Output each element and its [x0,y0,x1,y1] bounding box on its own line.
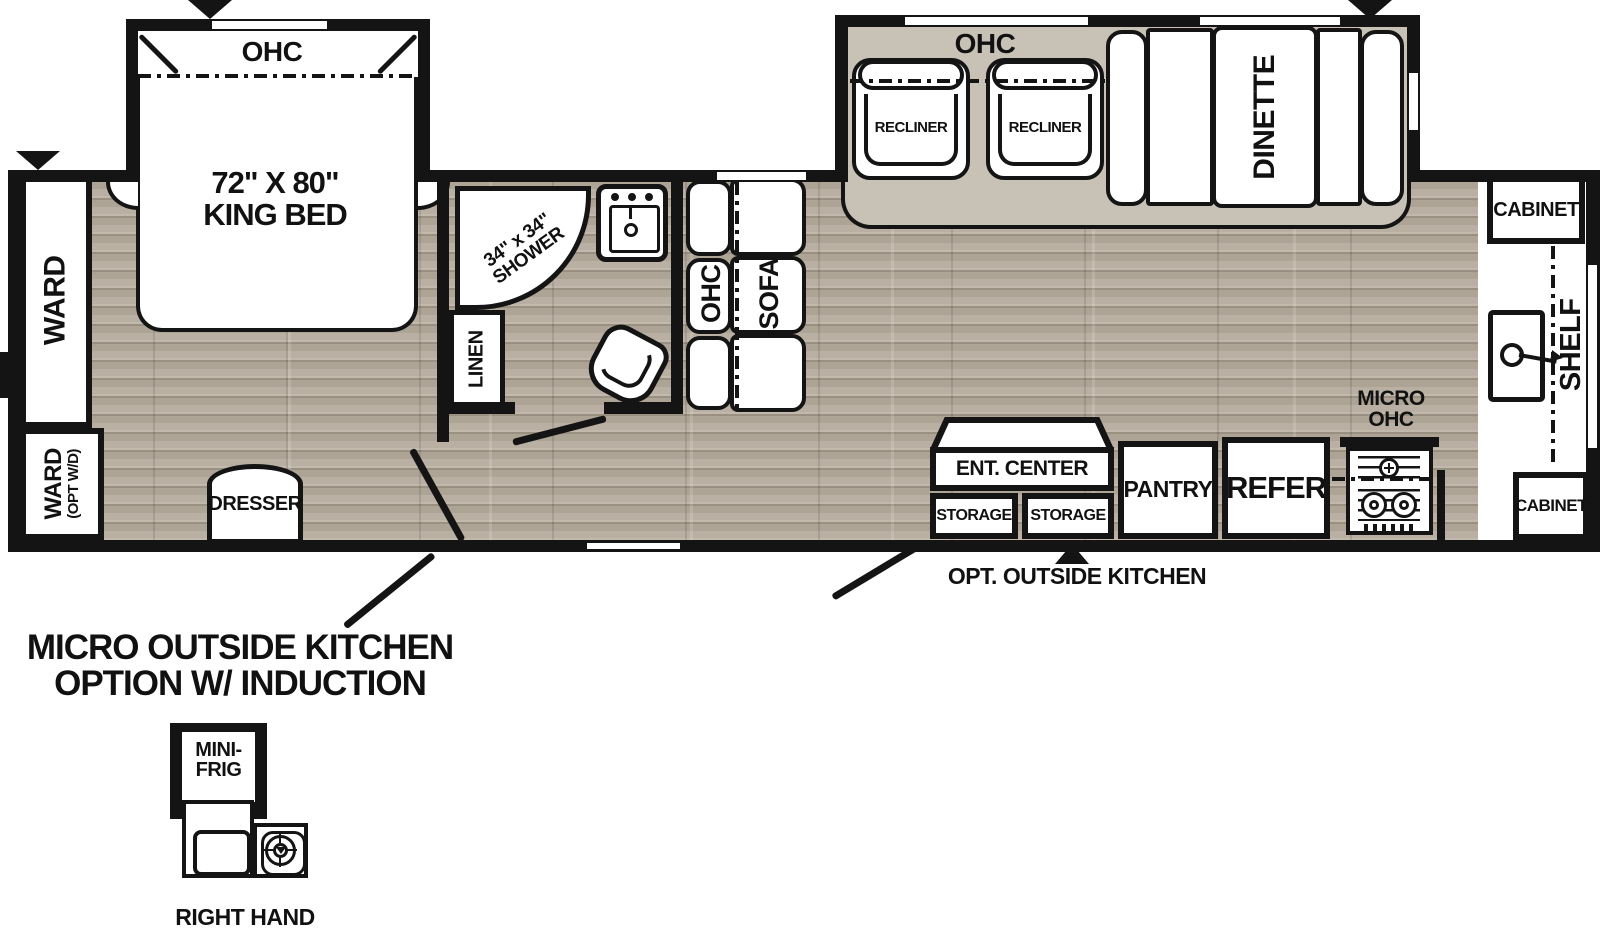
faucet-hole-icon [611,193,619,201]
storage-right: STORAGE [1022,493,1114,539]
dresser: DRESSER [207,464,303,544]
outside-kitchen-icons: MINI- FRIG [170,723,310,883]
burner-icon [1361,492,1387,518]
front-marker-icon [16,151,60,170]
ward-closet: WARD [20,172,92,428]
sofa-seat-cushion [730,334,806,412]
bed-slide-window [212,21,327,29]
dresser-label: DRESSER [208,494,301,514]
ent-center-top [930,417,1114,449]
shelf-label: SHELF [1557,285,1587,405]
sofa-ohc-line [735,182,739,410]
rear-cabinet-bottom: CABINET [1513,472,1589,540]
dinette-seat [1146,28,1214,206]
variant-label: RIGHT HAND [165,906,325,929]
living-slide-window [905,17,1088,25]
dinette-backrest [1106,30,1148,206]
top-wall [1407,170,1600,182]
recliner-label: RECLINER [852,120,970,135]
recliner-label: RECLINER [986,120,1104,135]
sink-spout [629,205,632,219]
rear-wall-window [1588,265,1597,448]
sofa-label: SOFA [756,254,784,334]
ward-optwd-closet: WARD (OPT W/D) [20,428,104,540]
sink-drain-icon [624,223,638,237]
kitchen-sink [1488,310,1545,402]
recliner-right: RECLINER [986,58,1104,180]
microwave-icon [182,800,254,878]
micro-ohc-label: MICRO OHC [1346,388,1436,431]
shower-label: 34" x 34" SHOWER [478,208,568,288]
faucet-hole-icon [645,193,653,201]
ward-label: WARD [41,255,72,345]
storage-left: STORAGE [930,493,1018,539]
counter-divider [1437,470,1445,540]
bed-slide-wall-right [418,19,430,182]
pantry: PANTRY [1118,441,1218,539]
range-cooktop [1346,447,1433,535]
faucet-hole-icon [628,193,636,201]
ent-center: ENT. CENTER [930,447,1114,491]
bath-sink [596,184,668,262]
range-counter-line [1332,477,1442,481]
dinette-label: DINETTE [1250,55,1281,180]
living-slide-ohc-label: OHC [930,30,1040,59]
burner-icon [1379,458,1399,478]
living-slide-ohc-line [850,79,1106,83]
burner-icon [1391,492,1417,518]
range-vent [1364,524,1416,533]
rv-floorplan: OHC 72" X 80" KING BED WARD WARD (OPT W/… [0,0,1600,935]
front-wall [8,170,20,552]
entry-door [587,540,680,552]
sofa-seat-cushion [730,178,806,256]
ward-optwd-label: WARD (OPT W/D) [42,448,82,519]
sofa-ohc-label: OHC [698,254,726,334]
ent-center-label: ENT. CENTER [956,458,1088,479]
bottom-wall [680,540,1600,552]
dinette-seat [1316,28,1362,206]
bottom-wall [10,540,587,552]
linen-label: LINEN [467,330,487,388]
living-slide-window [1200,17,1340,25]
opt-kitchen-marker-icon [1055,544,1089,564]
option-title: MICRO OUTSIDE KITCHEN OPTION W/ INDUCTIO… [5,630,475,701]
top-wall [10,170,138,182]
induction-burner-icon [253,823,308,878]
recliner-left: RECLINER [852,58,970,180]
leader-line-left [343,552,436,629]
slide-marker-icon [1348,0,1392,19]
sofa-back-cushion [686,336,732,410]
king-bed-label: 72" X 80" KING BED [190,167,360,230]
sofa-back-cushion [686,180,732,256]
slide-marker-icon [188,0,232,19]
dinette-backrest [1360,30,1404,206]
refrigerator: REFER [1222,437,1330,539]
opt-outside-kitchen-label: OPT. OUTSIDE KITCHEN [947,565,1207,588]
living-slide-side-window [1409,73,1418,130]
range-hood-bar [1340,437,1439,447]
rear-cabinet-top: CABINET [1487,176,1585,244]
linen-closet: LINEN [449,310,505,408]
bathroom-wall-bottom-left [437,402,515,414]
bed-slide-wall-left [126,19,138,182]
bed-slide-ohc-label: OHC [222,38,322,67]
mini-frig: MINI- FRIG [182,732,255,802]
bed-ohc-line [138,74,418,78]
sofa-window [717,172,806,180]
living-slide-wall-left [835,15,848,182]
front-wall-stub [0,352,8,398]
bathroom-wall-right [671,182,683,414]
dinette-table: DINETTE [1212,26,1318,208]
